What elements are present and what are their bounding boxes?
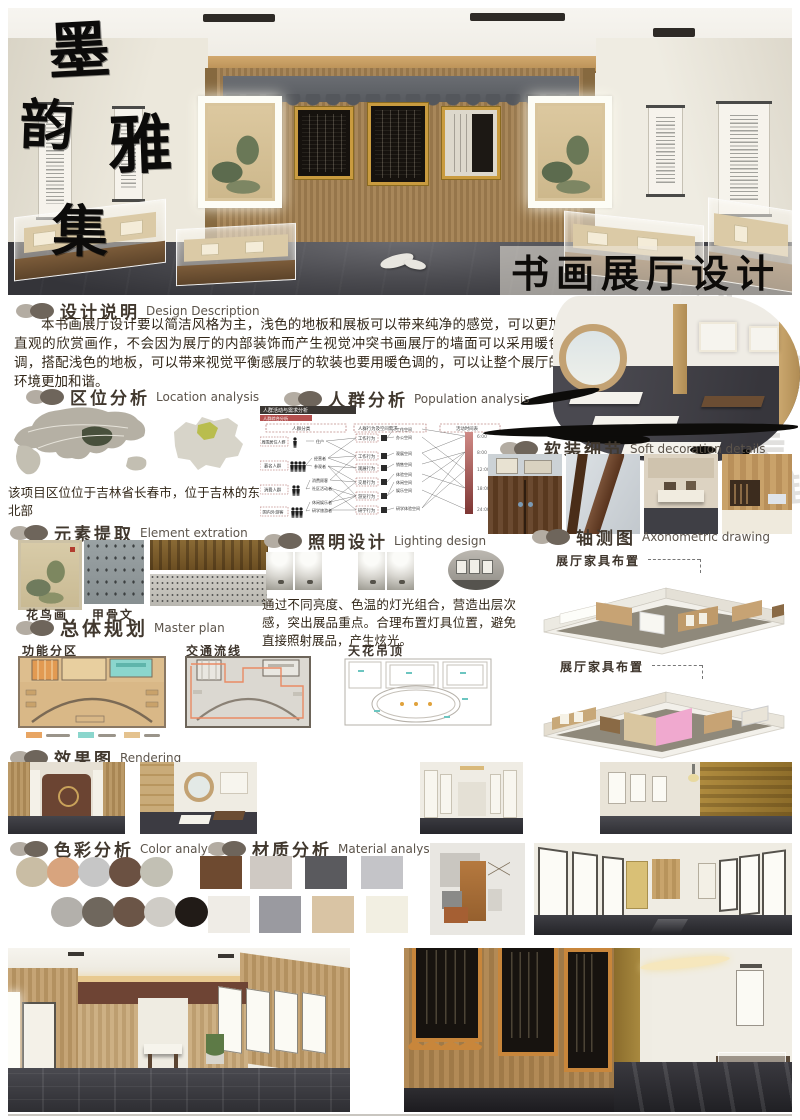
svg-text:社区活动者: 社区活动者	[312, 485, 332, 491]
province-map	[160, 402, 252, 484]
color-swatch-circle	[109, 857, 142, 887]
section-title-en: Element extration	[140, 526, 248, 540]
photo-chair-detail	[566, 454, 640, 534]
legend-swatch	[124, 732, 140, 738]
title-char: 韵	[19, 97, 75, 153]
svg-text:国内外游客: 国内外游客	[263, 509, 285, 516]
photo-gold-mural-room	[600, 762, 792, 834]
bullet-icon	[298, 391, 322, 407]
title-char: 墨	[46, 18, 111, 83]
photo-scroll-corridor	[534, 843, 792, 935]
photo-stone-rubbing	[150, 574, 267, 606]
svg-text:工作行为: 工作行为	[358, 453, 375, 460]
color-swatch-circle	[51, 897, 84, 927]
material-swatch-branch-paper	[208, 896, 250, 933]
person-icons	[290, 437, 306, 518]
section-color-analysis: 色彩分析 Color analysis	[10, 836, 224, 861]
world-map	[8, 402, 160, 484]
material-swatch-wood	[200, 856, 242, 889]
title-char: 雅	[107, 113, 173, 179]
svg-text:休闲空间: 休闲空间	[396, 479, 412, 485]
time-bar	[465, 432, 473, 514]
dashed-leader	[652, 665, 702, 666]
hanging-scroll	[648, 107, 683, 195]
svg-text:观展空间: 观展空间	[396, 450, 412, 456]
bullet-icon	[222, 841, 246, 857]
material-swatch-dark-marble	[305, 856, 347, 889]
svg-text:研学体验空间: 研学体验空间	[396, 505, 420, 511]
svg-text:消费顾客: 消费顾客	[312, 477, 328, 483]
svg-text:办公空间: 办公空间	[396, 434, 412, 440]
svg-text:人群活动与需求分析: 人群活动与需求分析	[263, 407, 308, 414]
svg-text:6:00: 6:00	[477, 434, 487, 440]
photo-entry-hall	[8, 762, 125, 834]
section-title-zh: 照明设计	[308, 528, 388, 553]
svg-text:娱乐空间: 娱乐空间	[396, 487, 412, 493]
svg-text:消费人群: 消费人群	[264, 487, 282, 494]
section-title-en: Axonometric drawing	[642, 530, 770, 544]
photo-oracle-bone-script	[84, 540, 144, 604]
legend-text-smudge	[144, 734, 160, 737]
ceiling-vent	[470, 13, 565, 21]
hanging-scroll	[718, 103, 770, 215]
photo-gallery-oval	[448, 550, 504, 590]
photo-wood-cabinet	[488, 454, 562, 534]
color-swatch-circle	[78, 857, 111, 887]
svg-text:8:00: 8:00	[477, 450, 487, 456]
section-title-en: Lighting design	[394, 534, 486, 548]
color-swatch-circle	[47, 857, 80, 887]
bullet-icon	[30, 620, 54, 636]
color-swatch-circle	[175, 897, 208, 927]
dashed-leader	[648, 559, 700, 560]
design-poster: 墨 韵 雅 集 书画展厅设计 老 禮 道 美 雅 设计说明 Design Des…	[0, 0, 800, 1120]
photo-tearoom	[644, 454, 718, 534]
svg-text:人群行为及空间需求: 人群行为及空间需求	[358, 425, 398, 432]
color-swatch-circle	[16, 857, 49, 887]
section-title-en: Material analysis	[338, 842, 439, 856]
ceiling-vent	[203, 14, 275, 22]
plan-function-zoning	[18, 656, 166, 728]
photo-final-corridor	[404, 948, 792, 1112]
display-case	[176, 223, 296, 286]
photo-final-room	[8, 948, 350, 1112]
ceiling-vent	[653, 28, 695, 37]
material-swatch-cream	[366, 896, 408, 933]
calligraphy-panel	[442, 107, 500, 179]
svg-text:活动时间表: 活动时间表	[456, 425, 479, 432]
svg-text:参观者: 参观者	[314, 463, 326, 469]
svg-text:研学旅游者: 研学旅游者	[312, 507, 332, 513]
location-note: 该项目区位位于吉林省长春市，位于吉林的东北部	[8, 484, 260, 520]
dashed-leader	[702, 665, 703, 679]
axon-label: 展厅家具布置	[560, 658, 644, 675]
title-char: 集	[52, 204, 109, 261]
photo-lamp-glow	[358, 552, 385, 590]
svg-text:经营者: 经营者	[314, 455, 326, 461]
plan-label: 天花吊顶	[348, 642, 404, 659]
svg-text:住户: 住户	[316, 438, 324, 444]
photo-bamboo-slips	[150, 540, 268, 570]
section-title-en: Master plan	[154, 621, 225, 635]
hero-caption: 书画展厅设计	[500, 246, 792, 295]
photo-lamp-glow	[295, 552, 322, 590]
photo-calligraphy-desk	[722, 454, 792, 534]
photo-lamp-glow	[266, 552, 293, 590]
axonometric-view-1	[536, 574, 792, 658]
color-swatch-circle	[82, 897, 115, 927]
photo-corridor	[420, 762, 523, 834]
design-description-body: 本书画展厅设计要以简洁风格为主，浅色的地板和展板可以带来纯净的感觉，可以更加直观…	[14, 316, 562, 393]
svg-text:周围居住人群: 周围居住人群	[262, 439, 286, 445]
svg-text:慕名人群: 慕名人群	[264, 463, 282, 470]
svg-text:工作行为: 工作行为	[358, 435, 375, 442]
bullet-icon	[546, 529, 570, 545]
section-master-plan: 总体规划 Master plan	[16, 614, 225, 641]
hero-rendering: 墨 韵 雅 集 书画展厅设计	[8, 8, 792, 295]
color-swatch-circle	[113, 897, 146, 927]
page-edge-line	[8, 1114, 792, 1116]
svg-text:休闲娱乐者: 休闲娱乐者	[312, 499, 332, 505]
calligraphy-panel	[295, 107, 353, 179]
svg-text:交易行为: 交易行为	[358, 479, 375, 486]
plan-ceiling	[344, 658, 492, 726]
bullet-icon	[24, 841, 48, 857]
axonometric-view-2	[536, 680, 792, 762]
svg-text:销售空间: 销售空间	[396, 461, 412, 467]
svg-text:体验空间: 体验空间	[396, 471, 412, 477]
material-swatch-metal	[259, 896, 301, 933]
section-title-zh: 轴测图	[576, 524, 636, 549]
legend-text-smudge	[98, 734, 116, 737]
hero-caption-text: 书画展厅设计	[511, 243, 781, 295]
plan-circulation	[185, 656, 311, 728]
bullet-icon	[24, 525, 48, 541]
legend-swatch	[78, 732, 94, 738]
photo-study-room	[140, 762, 257, 834]
illuminated-painting	[528, 96, 612, 208]
section-lighting: 照明设计 Lighting design	[264, 528, 486, 553]
material-swatch-plaster	[250, 856, 292, 889]
photo-lamp-glow	[387, 552, 414, 590]
section-axonometric: 轴测图 Axonometric drawing	[532, 524, 770, 549]
color-swatch-circle	[144, 897, 177, 927]
population-diagram: 人群活动与需求分析 人群综合分析 人群分类 人群行为及空间需求 活动时间表 周围…	[260, 406, 510, 532]
calligraphy-panel	[368, 103, 428, 185]
svg-text:人群综合分析: 人群综合分析	[263, 415, 288, 422]
illuminated-painting	[198, 96, 282, 208]
material-swatch-light-wood	[312, 896, 354, 933]
photo-material-board	[430, 843, 525, 935]
material-swatch-light-marble	[361, 856, 403, 889]
color-swatch-circle	[140, 857, 173, 887]
legend-text-smudge	[46, 734, 70, 737]
svg-text:工作空间: 工作空间	[396, 426, 412, 432]
section-title-zh: 总体规划	[60, 614, 148, 641]
axon-label: 展厅家具布置	[556, 552, 640, 569]
svg-text:人群分类: 人群分类	[292, 425, 311, 432]
svg-text:研学行为: 研学行为	[358, 507, 375, 514]
svg-text:游览行为: 游览行为	[358, 493, 375, 500]
dashed-leader	[700, 559, 701, 573]
svg-text:观展行为: 观展行为	[358, 465, 375, 472]
bullet-icon	[278, 533, 302, 549]
photo-flower-bird-painting	[18, 540, 82, 610]
section-title-en: Population analysis	[414, 392, 529, 406]
legend-swatch	[26, 732, 42, 738]
